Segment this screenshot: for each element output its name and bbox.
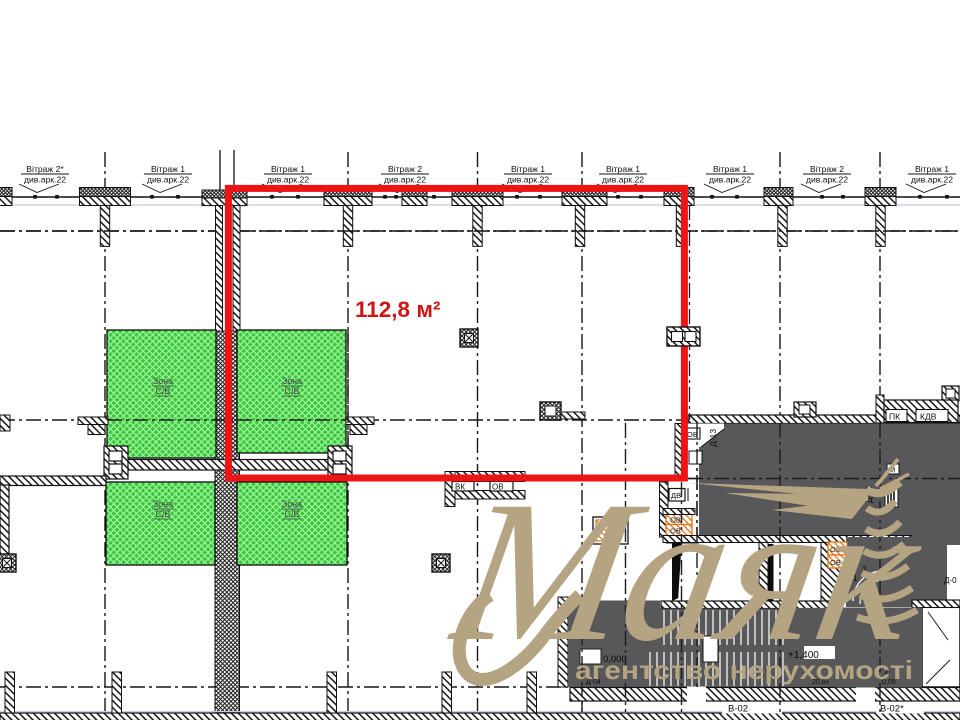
svg-text:Вітраж 1: Вітраж 1 xyxy=(606,164,640,174)
svg-text:ОВ: ОВ xyxy=(687,430,698,439)
svg-text:КДВ: КДВ xyxy=(920,412,937,422)
svg-text:ВК: ВК xyxy=(455,483,465,492)
svg-text:Зона: Зона xyxy=(282,376,302,386)
svg-text:С/В: С/В xyxy=(285,509,300,519)
svg-text:Вітраж 1: Вітраж 1 xyxy=(915,164,949,174)
svg-text:112,8 м²: 112,8 м² xyxy=(355,297,441,322)
svg-text:Зона: Зона xyxy=(153,499,173,509)
svg-text:Вітраж 2: Вітраж 2 xyxy=(388,164,422,174)
svg-text:В-02*: В-02* xyxy=(880,704,904,715)
svg-text:Вітраж 2*: Вітраж 2* xyxy=(26,164,64,174)
svg-text:див.арк.22: див.арк.22 xyxy=(709,175,751,185)
svg-text:С/В: С/В xyxy=(285,386,300,396)
svg-text:Вітраж 2: Вітраж 2 xyxy=(810,164,844,174)
svg-text:Вітраж 1: Вітраж 1 xyxy=(713,164,747,174)
svg-text:Маяк: Маяк xyxy=(438,460,937,683)
svg-text:Вітраж 1: Вітраж 1 xyxy=(511,164,545,174)
svg-text:див.арк.22: див.арк.22 xyxy=(24,175,66,185)
svg-text:див.арк.22: див.арк.22 xyxy=(267,175,309,185)
svg-text:Зона: Зона xyxy=(282,499,302,509)
svg-text:Вітраж 1: Вітраж 1 xyxy=(151,164,185,174)
svg-text:Зона: Зона xyxy=(153,376,173,386)
svg-text:Вітраж 1: Вітраж 1 xyxy=(271,164,305,174)
svg-text:див.арк.22: див.арк.22 xyxy=(806,175,848,185)
svg-text:ПК: ПК xyxy=(889,412,900,422)
svg-text:див.арк.22: див.арк.22 xyxy=(507,175,549,185)
svg-text:див.арк.22: див.арк.22 xyxy=(384,175,426,185)
svg-text:В-02: В-02 xyxy=(728,704,748,715)
svg-text:див.арк.22: див.арк.22 xyxy=(602,175,644,185)
svg-text:С/В: С/В xyxy=(156,386,171,396)
svg-text:Д-13: Д-13 xyxy=(708,429,718,447)
svg-text:агентство нерухомості: агентство нерухомості xyxy=(575,655,913,685)
svg-text:С/В: С/В xyxy=(156,509,171,519)
svg-text:див.арк.22: див.арк.22 xyxy=(911,175,953,185)
svg-text:див.арк.22: див.арк.22 xyxy=(147,175,189,185)
svg-text:Д-0: Д-0 xyxy=(944,576,957,585)
